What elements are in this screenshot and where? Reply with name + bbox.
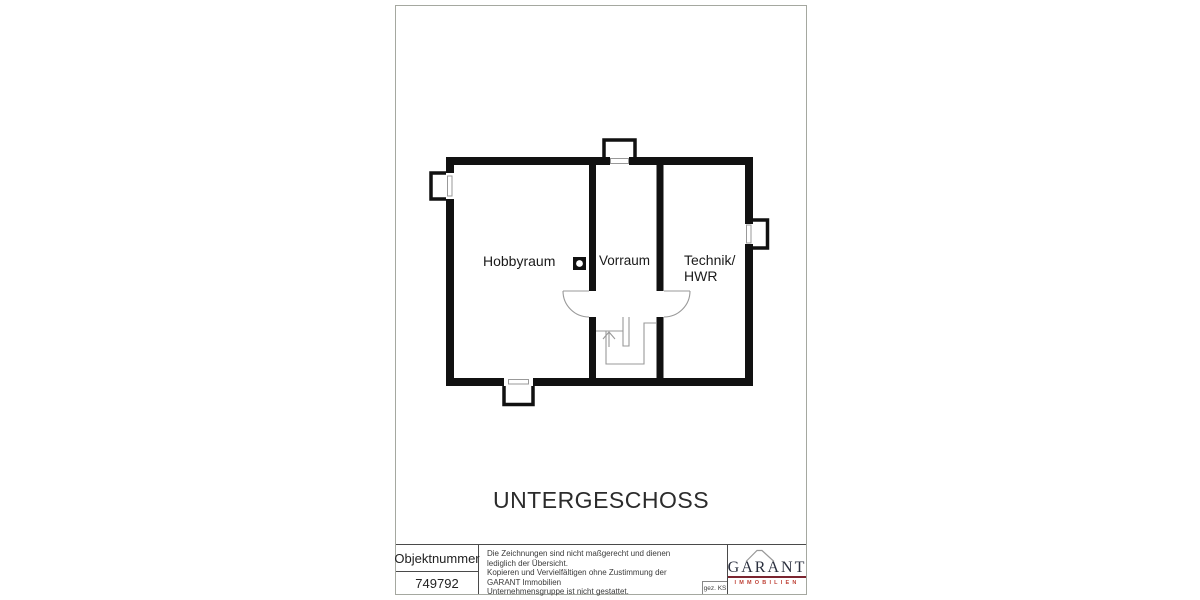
stair-outline xyxy=(606,323,656,364)
window-left-pane xyxy=(448,176,453,196)
door-swing-right-icon xyxy=(664,291,690,317)
wall-hobbyraum-vorraum-upper xyxy=(589,165,596,291)
room-label-technik-line1: Technik/ xyxy=(684,252,735,268)
window-bottom-icon xyxy=(504,386,533,405)
chimney-icon xyxy=(573,257,586,270)
wall-top-left-segment xyxy=(446,157,610,165)
stair-turn-slot xyxy=(623,317,629,346)
floor-title: UNTERGESCHOSS xyxy=(396,487,806,514)
room-label-hobbyraum: Hobbyraum xyxy=(483,253,555,269)
garant-logo: GARANT IMMOBILIEN xyxy=(728,559,807,586)
wall-vorraum-technik-lower xyxy=(657,317,664,378)
wall-left-upper-segment xyxy=(446,157,454,173)
logo-brand-text: GARANT xyxy=(728,560,807,578)
window-bottom-pane xyxy=(509,380,529,385)
wall-vorraum-technik-upper xyxy=(657,165,664,291)
window-right-pane xyxy=(747,225,752,243)
object-number-cell: Objektnummer 749792 xyxy=(396,545,479,594)
disclaimer-line-1: Die Zeichnungen sind nicht maßgerecht un… xyxy=(487,549,701,568)
wall-right-upper-segment xyxy=(745,157,753,224)
object-number-value: 749792 xyxy=(396,572,478,594)
room-label-vorraum: Vorraum xyxy=(599,253,650,269)
logo-cell: GARANT IMMOBILIEN xyxy=(728,545,806,594)
disclaimer-line-2: Kopieren und Vervielfältigen ohne Zustim… xyxy=(487,568,701,587)
window-right-icon xyxy=(753,220,768,248)
disclaimer-cell: Die Zeichnungen sind nicht maßgerecht un… xyxy=(479,545,728,594)
doors xyxy=(563,291,690,317)
object-number-label: Objektnummer xyxy=(396,545,478,572)
stair-up-arrow-icon xyxy=(603,332,615,347)
wall-top-right-segment xyxy=(629,157,753,165)
logo-roof-icon xyxy=(745,549,775,562)
window-left-icon xyxy=(431,173,446,199)
disclaimer-line-3: Unternehmensgruppe ist nicht gestattet. xyxy=(487,587,701,597)
wall-bottom-right-segment xyxy=(533,378,753,386)
drawn-by-badge: gez. KS xyxy=(702,581,727,594)
window-top-pane xyxy=(611,159,629,164)
window-top-icon xyxy=(604,140,635,157)
room-label-technik-line2: HWR xyxy=(684,268,735,284)
floorplan-sheet: Hobbyraum Vorraum Technik/ HWR UNTERGESC… xyxy=(395,5,807,595)
staircase xyxy=(596,317,656,364)
wall-right-lower-segment xyxy=(745,244,753,386)
wall-left-lower-segment xyxy=(446,199,454,386)
screenshot-canvas: Hobbyraum Vorraum Technik/ HWR UNTERGESC… xyxy=(0,0,1200,600)
title-block: Objektnummer 749792 Die Zeichnungen sind… xyxy=(396,544,806,594)
wall-hobbyraum-vorraum-lower xyxy=(589,317,596,378)
door-swing-left-icon xyxy=(563,291,589,317)
wall-bottom-left-segment xyxy=(446,378,504,386)
logo-subtitle-text: IMMOBILIEN xyxy=(728,580,807,586)
